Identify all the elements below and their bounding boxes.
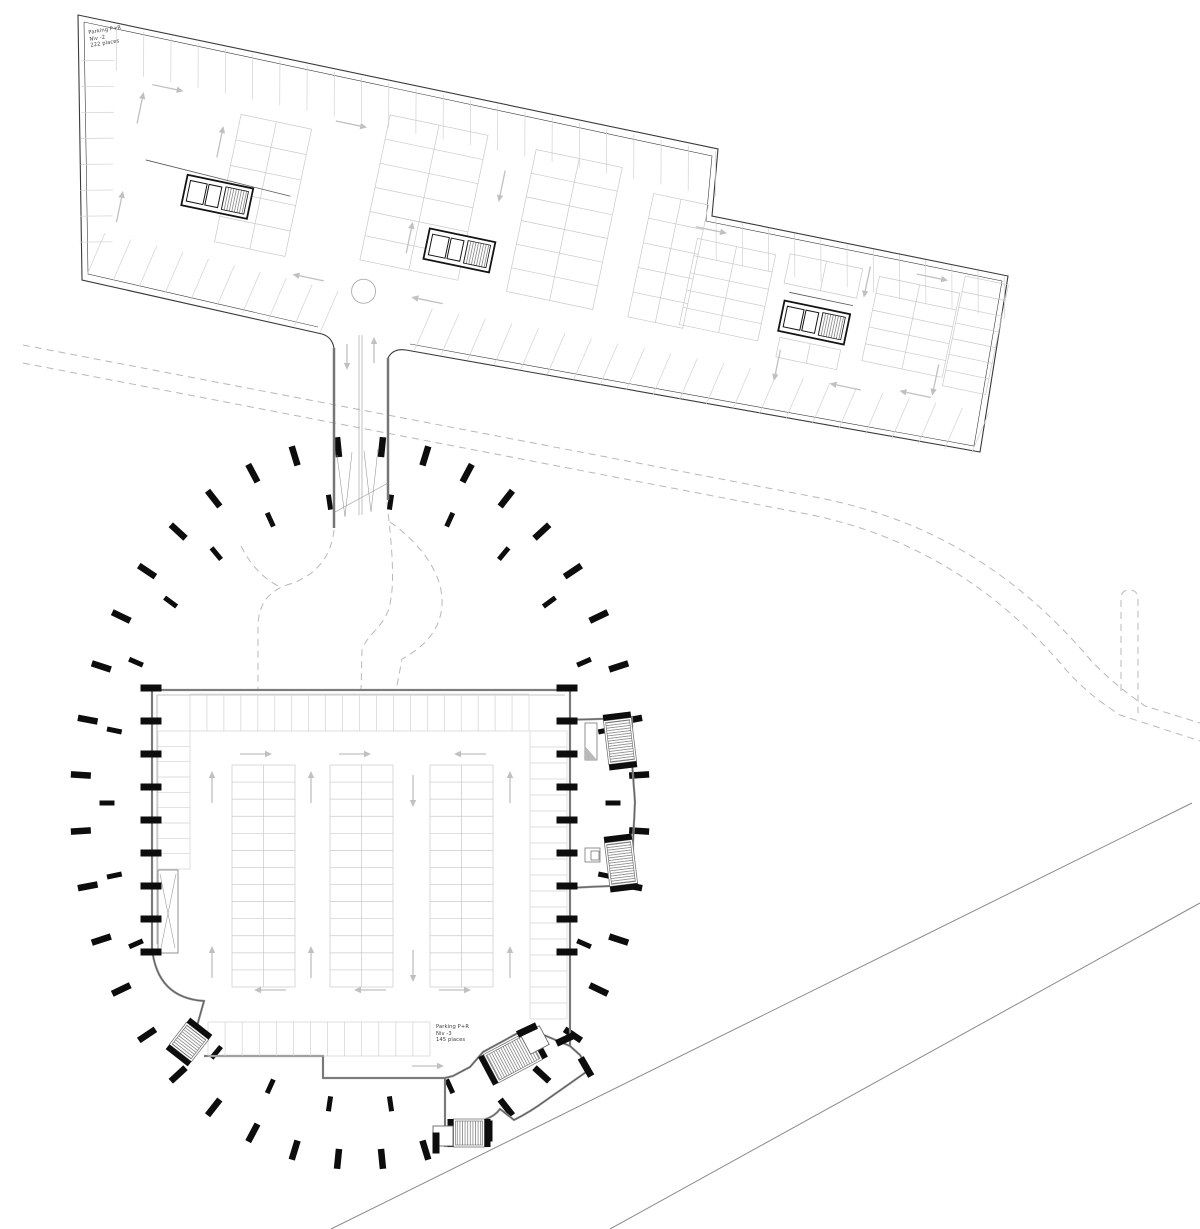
upper-parking-building bbox=[37, 15, 1029, 469]
wall-column-tick bbox=[557, 949, 578, 956]
column-dash bbox=[334, 1149, 342, 1170]
parking-stall-island bbox=[232, 765, 295, 987]
wall-column-tick bbox=[141, 883, 162, 890]
column-dash bbox=[532, 1065, 551, 1083]
column-dash bbox=[588, 609, 609, 624]
wall-column-tick bbox=[141, 817, 162, 824]
site-plan-drawing bbox=[0, 0, 1200, 1229]
column-dash bbox=[433, 1133, 440, 1154]
column-dash bbox=[265, 1078, 276, 1094]
column-dash bbox=[205, 1098, 222, 1118]
column-dash bbox=[91, 933, 112, 945]
parking-stall-island bbox=[628, 193, 709, 328]
column-dash bbox=[137, 563, 157, 580]
wall-column-tick bbox=[141, 916, 162, 923]
parking-stall-island bbox=[330, 765, 393, 987]
dashed-road bbox=[258, 530, 334, 691]
column-rings bbox=[71, 437, 650, 1169]
column-dash bbox=[128, 657, 144, 668]
column-dash bbox=[163, 596, 178, 609]
upper-building-interior bbox=[37, 21, 1029, 470]
wall-column-tick bbox=[141, 718, 162, 725]
column-dash bbox=[387, 1096, 394, 1112]
column-dash bbox=[460, 463, 475, 484]
column-dash bbox=[245, 463, 260, 484]
parking-stall-island bbox=[679, 238, 775, 341]
wall-column-tick bbox=[141, 949, 162, 956]
column-dash bbox=[578, 1056, 595, 1078]
wall-column-tick bbox=[141, 751, 162, 758]
column-dash bbox=[137, 1027, 157, 1044]
stair-core bbox=[778, 301, 850, 345]
stair-core bbox=[423, 228, 495, 272]
column-dash bbox=[608, 660, 629, 672]
wall-column-tick bbox=[557, 751, 578, 758]
column-dash bbox=[169, 522, 188, 540]
column-dash bbox=[606, 801, 621, 806]
dashed-road bbox=[23, 363, 1200, 741]
column-dash bbox=[498, 489, 515, 509]
upper-building-outline bbox=[78, 15, 1008, 452]
column-dash bbox=[563, 563, 583, 580]
wall-column-tick bbox=[557, 685, 578, 692]
roundabout-circle bbox=[349, 277, 377, 305]
column-dash bbox=[210, 1045, 223, 1060]
wall-column-tick bbox=[557, 718, 578, 725]
column-dash bbox=[107, 727, 123, 735]
wall-column-tick bbox=[557, 916, 578, 923]
parking-stall-band bbox=[85, 231, 340, 334]
dashed-road bbox=[361, 502, 393, 691]
stairwell bbox=[166, 1018, 213, 1067]
column-dash bbox=[444, 512, 455, 528]
lower-parking-label: Parking P+R Niv -3 145 places bbox=[436, 1024, 469, 1044]
column-dash bbox=[532, 522, 551, 540]
parking-stall-band bbox=[530, 731, 567, 1019]
column-dash bbox=[326, 1096, 333, 1112]
wall-column-tick bbox=[141, 685, 162, 692]
parking-stall-island bbox=[862, 276, 960, 377]
column-dash bbox=[608, 933, 629, 945]
parking-stall-island bbox=[507, 150, 623, 310]
wall-column-tick bbox=[557, 817, 578, 824]
stair-core bbox=[181, 175, 253, 219]
column-dash bbox=[576, 657, 592, 668]
column-dash bbox=[486, 1121, 493, 1142]
wall-column-tick bbox=[557, 883, 578, 890]
column-dash bbox=[542, 596, 557, 609]
wall-column-tick bbox=[557, 784, 578, 791]
column-dash bbox=[629, 827, 649, 835]
parking-stall-band bbox=[208, 1022, 430, 1056]
parking-stall-island bbox=[430, 765, 493, 987]
column-dash bbox=[378, 1149, 386, 1170]
wall-column-tick bbox=[557, 850, 578, 857]
column-dash bbox=[205, 489, 222, 509]
vestibule bbox=[158, 870, 178, 953]
parking-stall-band bbox=[415, 295, 989, 467]
column-dash bbox=[289, 1140, 301, 1161]
site-plan: Parking P+R Niv -2 222 places Parking P+… bbox=[0, 0, 1200, 1229]
column-dash bbox=[107, 872, 123, 880]
vestibule bbox=[591, 851, 599, 860]
column-dash bbox=[326, 494, 333, 510]
column-dash bbox=[245, 1122, 260, 1143]
column-dash bbox=[576, 939, 592, 950]
column-dash bbox=[71, 827, 91, 835]
column-dash bbox=[419, 445, 431, 466]
column-dash bbox=[289, 445, 301, 466]
parking-stall-island bbox=[784, 254, 863, 298]
dashed-road bbox=[390, 522, 442, 691]
lower-parking-name: Parking P+R bbox=[436, 1024, 469, 1031]
parking-stall-band bbox=[190, 694, 529, 731]
column-dash bbox=[128, 939, 144, 950]
stairwell bbox=[448, 1119, 491, 1147]
column-dash bbox=[77, 881, 98, 891]
column-dash bbox=[71, 771, 91, 779]
column-dash bbox=[419, 1140, 431, 1161]
column-dash bbox=[77, 715, 98, 725]
lower-parking-places: 145 places bbox=[436, 1037, 469, 1044]
column-dash bbox=[169, 1065, 188, 1083]
column-dash bbox=[378, 437, 386, 458]
column-dash bbox=[210, 546, 223, 561]
dashed-road bbox=[241, 546, 280, 587]
diagonal-road bbox=[331, 803, 1192, 1229]
column-dash bbox=[497, 546, 510, 561]
wall-column-tick bbox=[141, 850, 162, 857]
parking-stall-band bbox=[45, 54, 148, 249]
diagonal-road bbox=[610, 903, 1200, 1229]
roads bbox=[23, 345, 1200, 1229]
column-dash bbox=[100, 801, 115, 806]
column-dash bbox=[111, 982, 132, 997]
column-dash bbox=[588, 982, 609, 997]
column-dash bbox=[111, 609, 132, 624]
column-dash bbox=[265, 512, 276, 528]
wall-column-tick bbox=[141, 784, 162, 791]
parking-stall-band bbox=[158, 731, 190, 869]
lower-parking-building bbox=[141, 685, 639, 1154]
column-dash bbox=[91, 660, 112, 672]
dashed-road bbox=[1121, 590, 1138, 713]
